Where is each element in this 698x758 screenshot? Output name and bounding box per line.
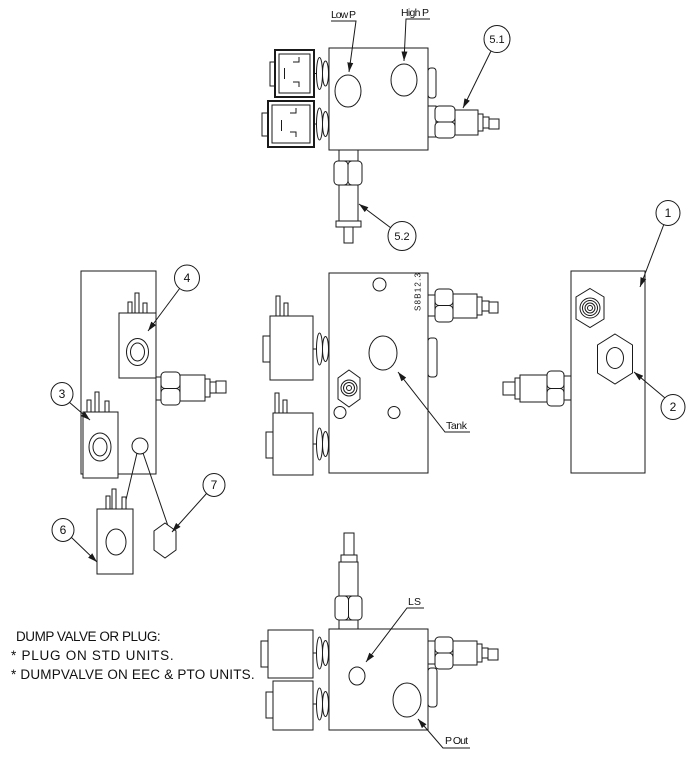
solenoid-pin [105,401,109,412]
fitting-body [180,375,205,401]
fitting-adapter [156,377,161,400]
fitting-ring [341,555,357,562]
fitting-ring [477,644,482,662]
fitting-ring [477,297,482,315]
side-boss [428,68,436,98]
ls-label: LS [408,596,421,608]
connector-tab [261,641,268,667]
top-manifold-assembly [262,48,499,243]
hex-nut-half [435,637,453,653]
callout-5-1: 5.1 [463,26,510,109]
p-out-port [393,683,421,717]
solenoid-pin [95,392,99,412]
coupling-ring [317,637,323,669]
hex-nut-half [435,106,455,122]
hex-nut-half [349,596,363,620]
coupling-ring [317,108,323,140]
hex-nut-half [348,161,362,185]
side-boss [428,338,437,377]
solenoid-pin [122,497,126,509]
mounting-hole [334,407,346,419]
fitting-adapter [339,620,358,629]
hex-nut-half [334,161,348,185]
fitting-adapter [428,641,435,664]
solenoid-pin [275,393,279,413]
callout-number: 1 [665,206,672,220]
hex-plug-7 [154,523,176,558]
fitting-ring [205,379,210,397]
connector-inner-frame [272,105,310,143]
fitting-body [453,641,477,665]
coupling-ring [317,688,323,720]
connector-tab [266,692,273,718]
high-p-label: High P [401,7,429,19]
callout-7: 7 [172,474,225,533]
coupling-ring [323,337,329,362]
solenoid-pin [106,496,110,509]
hex-nut-half [547,371,564,389]
bottom-manifold-assembly [261,533,498,730]
callout-leader [463,51,491,108]
connector-tab [263,336,270,362]
hex-nut-half [161,389,180,406]
right-end-block-assembly [503,271,645,473]
solenoid-coil [268,630,313,678]
callout-number: 6 [60,523,67,537]
fitting-adapter [339,150,358,161]
coupling-ring [323,641,329,666]
connector-inner-frame [279,54,310,93]
solenoid-pin [143,303,147,313]
hex-nut-half [435,306,453,323]
tank-label: Tank [446,420,468,432]
solenoid-pin [284,303,288,316]
left-manifold-assembly [81,271,226,574]
solenoid-pin [283,400,287,413]
callout-leader [640,224,664,287]
solenoid-pin [128,302,132,313]
relief-valve-ring [347,386,352,391]
fitting-stem [483,117,489,128]
fitting-adapter [428,295,435,316]
fitting-stem [482,648,488,658]
dump-valve-port [132,438,148,454]
fitting-tip [503,382,515,395]
coupling-ring [317,58,323,90]
coupling-ring [323,112,329,137]
note-bullet-2: * DUMPVALVE ON EEC & PTO UNITS. [11,667,255,682]
fitting-body [455,110,478,135]
coupling-ring [323,432,329,457]
fitting-ring [478,114,483,131]
valve-body [339,562,358,596]
low-p-port [335,75,361,107]
low-p-label: Low P [331,9,356,21]
ls-port [349,667,365,685]
solenoid-coil-ring [93,438,107,456]
coupling-ring [317,428,323,460]
parts-diagram-canvas: Low P High P 5.1 5.2 [0,0,698,758]
gauge-port [373,278,386,291]
callout-number: 7 [211,478,218,492]
plug-bore [607,348,624,369]
p-out-label: P Out [445,735,468,747]
solenoid-pin [135,293,139,313]
connector-tab [266,432,273,458]
fitting-tip [489,302,498,313]
hex-nut-half [435,122,455,138]
side-boss [428,668,437,707]
callout-6: 6 [52,519,97,563]
hex-nut-half [161,372,180,389]
hex-nut-half [435,653,453,669]
fitting-stem [344,533,354,555]
note-bullet-1: * PLUG ON STD UNITS. [11,648,174,663]
solenoid-pin [87,400,91,412]
solenoid-pin [276,296,280,316]
fitting-body [520,375,547,402]
note-heading: DUMP VALVE OR PLUG: [16,629,161,644]
fitting-ring [336,221,361,227]
fitting-tip [488,649,498,660]
callout-leader [359,204,391,228]
coupling-ring [323,61,329,86]
coupling-ring [323,692,329,717]
solenoid-pin [112,489,116,509]
high-p-port [391,64,417,96]
callout-number: 5.1 [489,34,504,46]
hex-nut-half [335,596,349,620]
fitting-body [453,294,477,318]
tank-port [369,336,397,370]
fitting-stem [344,227,353,243]
callout-leader [71,537,97,562]
fitting-stem [210,382,216,393]
fitting-adapter [564,376,571,400]
callout-number: 4 [184,271,191,285]
dump-valve-note: DUMP VALVE OR PLUG: * PLUG ON STD UNITS.… [11,629,255,682]
solenoid-coil [273,681,313,730]
block-marking: S8B12.3 [414,272,423,311]
callout-5-2: 5.2 [359,204,416,251]
valve-body [339,185,358,221]
valve-manifold-exploded-diagram: Low P High P 5.1 5.2 [0,0,698,758]
solenoid-coil [273,413,313,475]
solenoid-coil-ring [106,529,126,555]
hex-nut-half [435,289,453,306]
hex-nut-half [547,389,564,407]
solenoid-coil [270,316,313,380]
solenoid-coil-ring [131,343,145,361]
callout-number: 3 [59,387,66,401]
fitting-stem [482,301,489,311]
center-manifold-assembly: S8B12.3 [263,272,498,475]
plug-ring [588,306,593,311]
mounting-hole [388,407,400,419]
fitting-tip [216,381,226,393]
callout-1: 1 [640,201,680,288]
fitting-tip [489,119,499,129]
fitting-stem [515,378,520,399]
callout-number: 2 [670,400,677,414]
coupling-ring [317,333,323,365]
callout-leader [172,493,207,532]
callout-number: 5.2 [394,231,409,243]
